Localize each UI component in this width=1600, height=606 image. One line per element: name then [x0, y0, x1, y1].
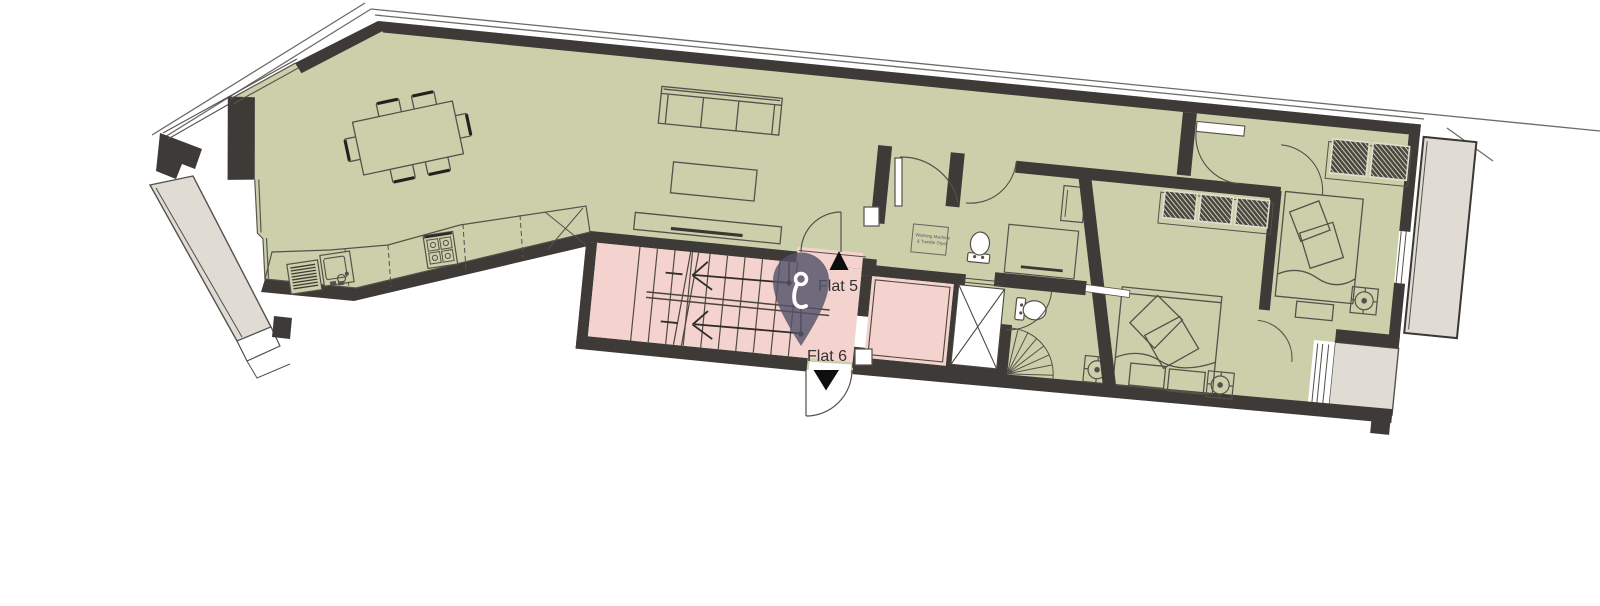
svg-text:Flat 6: Flat 6	[807, 348, 847, 365]
